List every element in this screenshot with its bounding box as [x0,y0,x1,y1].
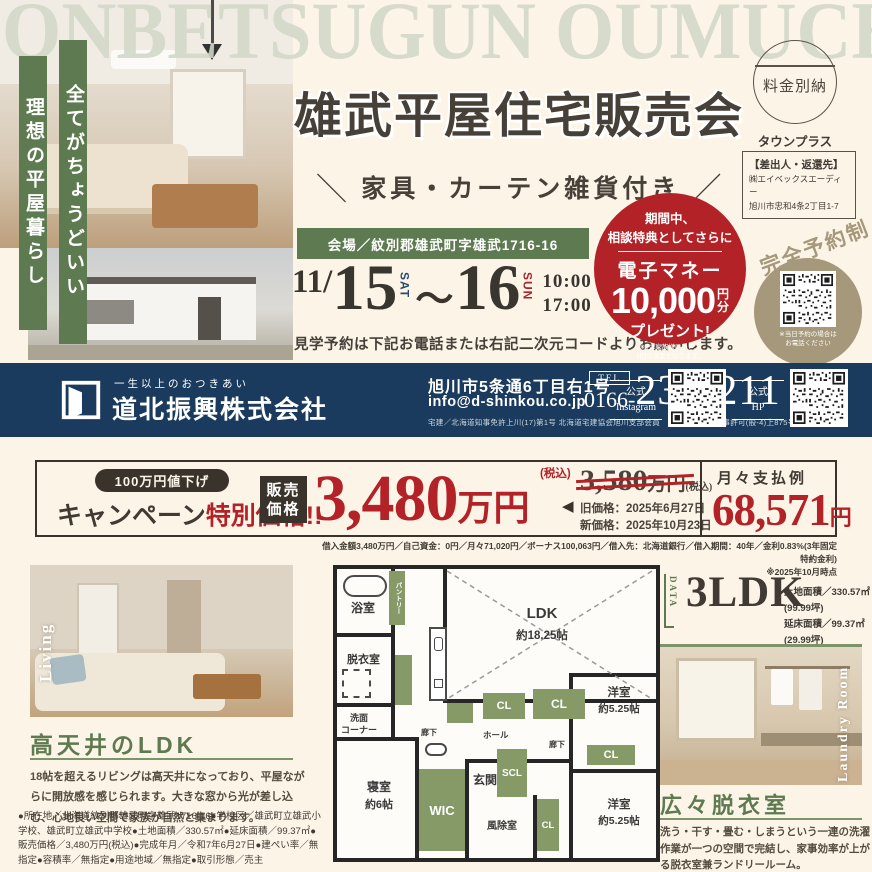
campaign-divider-line [700,460,702,537]
sale-price-tax-note: (税込) [540,465,571,481]
company-name: 道北振興株式会社 [112,390,328,426]
plan-wall [337,703,395,707]
loan-note: 借入金額3,480万円／自己資金：0円／月々71,020円／ボーナス100,06… [322,541,837,564]
sns-ig-line2: Instagram [616,402,656,413]
bonus-amount: 10,000 [611,283,715,319]
new-price-date: 新価格：2025年10月23日 [580,518,712,535]
room-label-western-1: 洋室 約5.25帖 [583,685,655,717]
bathtub-icon [343,575,387,597]
company-tagline: 一生以上のおつきあい [114,376,249,391]
room-label-ldk: LDK 約18.25帖 [487,603,597,645]
sender-heading: 【差出人・返還先】 [749,157,849,173]
western2-label: 洋室 [608,799,631,811]
postage-paid-stamp: 料金別納 [753,40,837,124]
hp-qr-code [790,369,848,427]
price-dates: 旧価格：2025年6月27日 新価格：2025年10月23日 [580,501,712,534]
bonus-note-line1: ※お1家族様につき、 [640,344,701,351]
sale-price-amount: 3,480 [314,462,458,535]
kitchen-cabinet-box-2 [447,703,473,723]
photo-table-shape [152,184,257,229]
company-logo-icon [58,377,104,423]
campaign-heading-black: キャンペーン [57,502,206,530]
date-range-tilde: ～ [411,258,455,323]
official-instagram-label: 公式 Instagram [610,380,662,420]
room-label-western-2: 洋室 約5.25帖 [583,797,655,829]
data-label: DATA [668,576,678,608]
bonus-line1: 期間中、 [594,208,746,227]
bonus-unit: 円 分 [715,288,729,314]
sns-hp-line2: HP [752,402,765,413]
sender-address: 旭川市忠和4条2丁目1-7 [749,200,849,213]
room-label-wash-corner: 洗面 コーナー [341,713,377,736]
laundry-section-heading: 広々脱衣室 [660,788,790,820]
date-day-16: 16 [455,258,520,320]
photo-floor-shape [660,760,862,785]
laundry-section-body: 洗う・干す・畳む・しまうという一連の洗濯作業が一つの空間で完結し、家事効率が上が… [660,824,872,872]
photo-house-door-shape [198,297,222,340]
living-photo-tag: Living [36,572,56,682]
company-bar: 一生以上のおつきあい 道北振興株式会社 旭川市5条通6丁目右1号 info@d-… [0,363,872,437]
bonus-unit-bun: 分 [717,300,729,314]
bonus-note: ※お1家族様につき、 1回の進呈となります。 [594,343,746,361]
western1-label: 洋室 [608,687,631,699]
plan-wall [337,633,395,637]
discount-badge: 100万円値下げ [95,469,229,492]
closet-cl-d: CL [537,799,559,851]
walk-in-closet-wic: WIC [419,769,465,851]
photo-table-shape [193,674,261,698]
sale-price: 3,480万円 [314,461,530,537]
laundry-heading-rule [660,818,862,820]
photo-backwall-shape [30,565,293,649]
high-ceiling-ldk-photo [30,565,293,717]
reservation-qr-code [780,271,836,327]
western1-size-label: 約5.25帖 [598,703,639,715]
time-line2: 17:00 [542,295,591,316]
ldk-heading-rule [30,758,293,760]
vertical-banner-ideal-life: 理想の平屋暮らし [19,56,47,330]
date-day-15: 15 [332,258,397,320]
room-label-entrance: 玄関 [473,771,497,788]
floor-plan: パントリー CL CL CL SCL CL WIC 浴室 脱衣室 洗面 コーナー… [333,565,660,862]
wash-label-line2: コーナー [341,725,377,735]
sale-price-unit: 万円 [458,488,530,528]
plan-wall [465,759,469,858]
kitchen-counter-icon [429,627,447,701]
sender-name: ㈱エイベックスエーディー [749,173,849,199]
bedroom-size-label: 約6帖 [365,799,393,811]
closet-cl-a: CL [483,693,525,719]
date-month: 11/ [292,258,332,301]
wash-label-line1: 洗面 [350,713,368,723]
ldk-size-label: 約18.25帖 [516,630,568,642]
vertical-banner-just-right: 全てがちょうどいい [59,40,87,344]
room-label-hall: ホール [483,729,509,741]
subtitle-left-slash: ＼ [316,172,351,207]
company-email: info@d-shinkou.co.jp [428,394,586,410]
reservation-qr-circle: ※当日予約の場合は お電話ください [754,258,862,366]
closet-cl-c: CL [587,745,635,765]
kitchen-stove-icon [434,679,443,688]
qr-note: ※当日予約の場合は お電話ください [779,331,836,349]
photo-ground-shape [28,345,293,360]
room-label-dressing: 脱衣室 [347,651,380,667]
land-area: 土地面積／330.57㎡(99.99坪) [784,585,872,617]
kitchen-sink-icon [434,637,443,651]
event-date: 11/ 15 SAT ～ 16 SUN 10:00 - 17:00 [292,258,605,323]
sns-ig-line1: 公式 [626,387,646,398]
room-label-hallway-2: 廊下 [549,739,565,750]
photo-shirt-shape-2 [799,669,821,710]
property-details-footnote: ●所在地／北海道紋別郡雄武町字雄武1716-16●学校区／雄武町立雄武小学校、雄… [18,810,322,869]
postal-service-name: タウンプラス [748,131,842,150]
laundry-room-photo [660,647,862,785]
sale-price-label: 販売 価格 [260,476,307,523]
area-figures: 土地面積／330.57㎡(99.99坪) 延床面積／99.37㎡(29.99坪) [784,585,872,650]
ldk-label: LDK [527,605,558,622]
monthly-payment-amount: 68,571 [712,485,830,535]
background-watermark-text: ONBETSUGUN OUMUCHO [2,0,872,78]
room-label-bath: 浴室 [351,599,375,616]
western2-size-label: 約5.25帖 [598,815,639,827]
photo-shirt-shape [771,669,793,705]
ldk-section-heading: 高天井のLDK [30,726,197,760]
bonus-line2: 相談特典としてさらに [594,227,746,246]
laundry-photo-tag: Laundry Room [836,654,852,782]
monthly-payment-unit: 円 [830,505,852,530]
monthly-payment: 68,571円 [712,484,852,536]
plan-wall [569,769,656,773]
photo-door-shape [77,583,119,662]
qr-note-line2: お電話ください [785,340,831,347]
old-price: 3,580万円(税込) [580,464,712,498]
shoe-closet-scl: SCL [497,749,527,797]
toilet-icon [425,743,447,756]
bonus-note-line2: 1回の進呈となります。 [636,353,704,360]
closet-cl-b: CL [533,689,585,719]
flyer-page: ONBETSUGUN OUMUCHO 理想の平屋暮らし 全てがちょうどいい 雄武… [0,0,872,872]
old-price-date: 旧価格：2025年6月27日 [580,501,712,518]
plan-wall [337,737,417,741]
instagram-qr-code [668,369,726,427]
room-label-windbreak: 風除室 [487,817,517,832]
bonus-amount-row: 10,000 円 分 [594,283,746,319]
pantry-box: パントリー [389,571,405,625]
stamp-divider-line [755,65,835,67]
bonus-offer-circle: 期間中、 相談特典としてさらに 電子マネー 10,000 円 分 プレゼント! … [594,193,746,345]
washer-icon [342,669,371,698]
sender-return-address-box: 【差出人・返還先】 ㈱エイベックスエーディー 旭川市忠和4条2丁目1-7 [742,151,856,219]
room-label-bedroom: 寝室 約6帖 [347,779,411,813]
sns-hp-line1: 公式 [748,387,768,398]
bonus-unit-yen: 円 [717,287,729,301]
room-label-hallway-1: 廊下 [421,727,437,738]
date-day-16-weekday: SUN [520,258,534,300]
bonus-divider [618,251,722,252]
bedroom-label: 寝室 [367,780,391,794]
date-day-15-weekday: SAT [397,258,411,298]
sale-price-label-line1: 販売 [266,482,300,499]
price-comparison-arrow: ◀ [562,497,574,515]
event-title: 雄武平屋住宅販売会 [294,76,744,146]
bonus-product: 電子マネー [594,256,746,283]
subtitle-text: 家具・カーテン雑貨付き [361,176,680,203]
photo-house-window-shape [86,300,134,325]
stamp-label: 料金別納 [763,75,827,96]
photo-window-shape [676,658,757,741]
kitchen-cabinet-box [395,655,412,705]
official-hp-label: 公式 HP [732,380,784,420]
sale-price-label-line2: 価格 [266,501,300,518]
qr-note-line1: ※当日予約の場合は [779,331,836,338]
bonus-present-label: プレゼント! [594,320,746,341]
